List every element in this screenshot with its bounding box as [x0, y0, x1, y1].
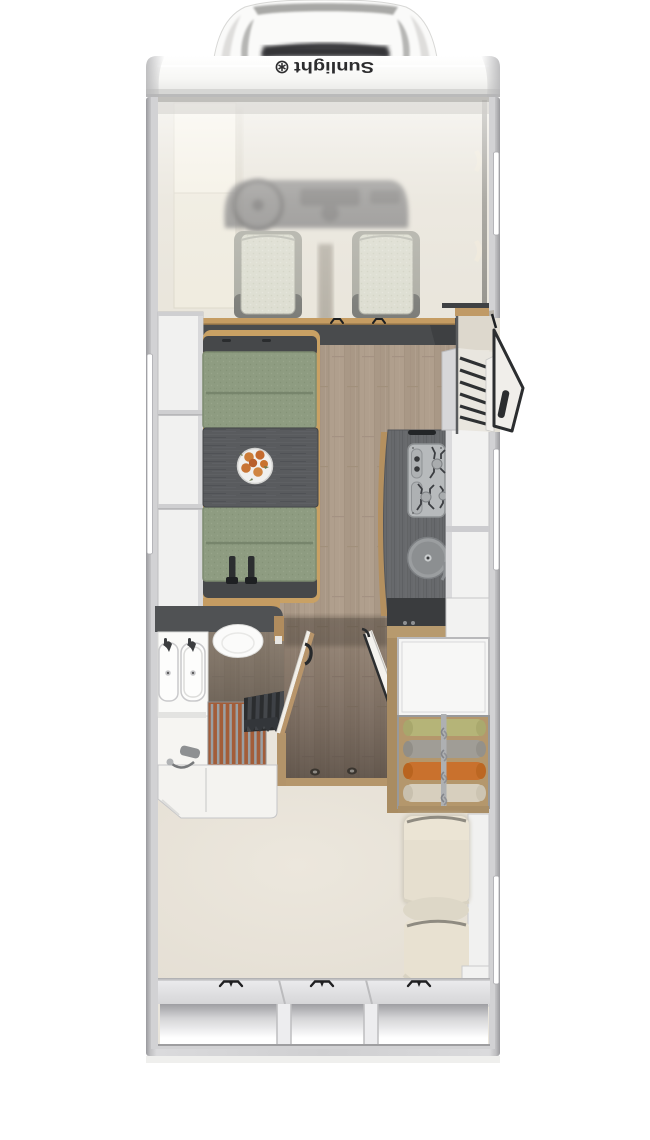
- svg-text:Sunlight: Sunlight: [294, 58, 374, 75]
